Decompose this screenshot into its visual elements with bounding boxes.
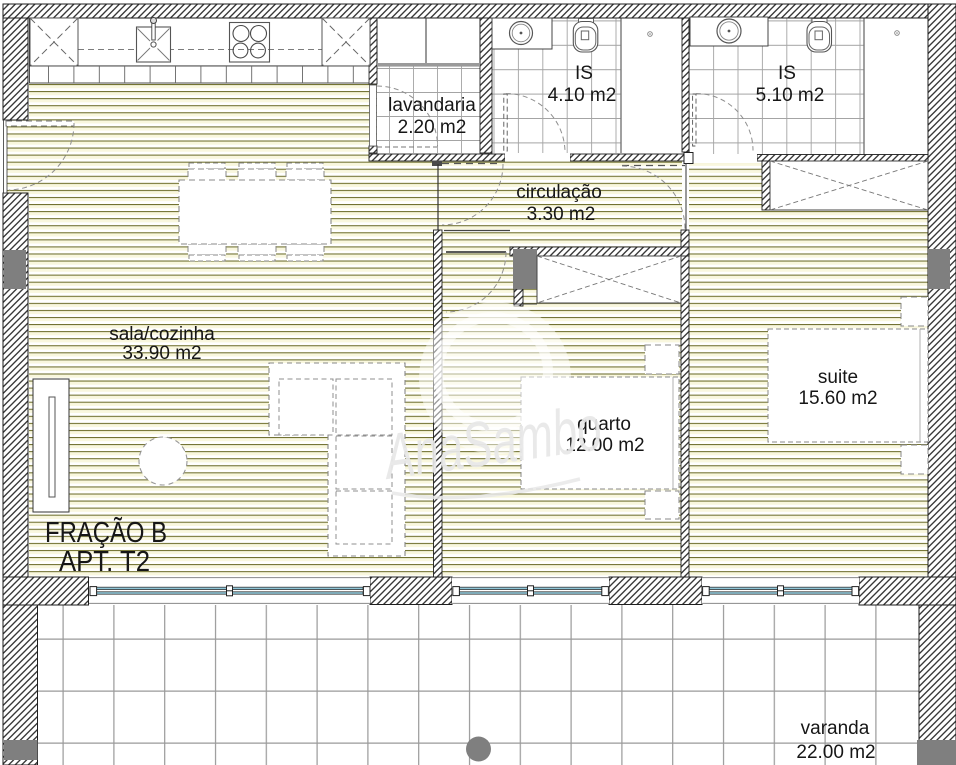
- svg-text:lavandaria: lavandaria: [388, 95, 476, 116]
- svg-text:APT. T2: APT. T2: [59, 546, 150, 578]
- svg-text:22.00 m2: 22.00 m2: [796, 742, 875, 763]
- svg-text:IS: IS: [575, 63, 593, 84]
- svg-text:4.10 m2: 4.10 m2: [548, 85, 617, 106]
- svg-text:2.20 m2: 2.20 m2: [398, 117, 467, 138]
- svg-text:15.60 m2: 15.60 m2: [798, 388, 877, 409]
- svg-text:3.30 m2: 3.30 m2: [527, 204, 596, 225]
- svg-text:varanda: varanda: [801, 718, 870, 739]
- svg-text:circulação: circulação: [516, 182, 602, 203]
- svg-text:FRAÇÃO B: FRAÇÃO B: [45, 515, 167, 549]
- svg-text:sala/cozinha: sala/cozinha: [109, 324, 215, 345]
- svg-text:IS: IS: [778, 63, 796, 84]
- svg-text:33.90 m2: 33.90 m2: [122, 343, 201, 364]
- svg-text:suite: suite: [818, 367, 858, 388]
- svg-text:5.10 m2: 5.10 m2: [756, 85, 825, 106]
